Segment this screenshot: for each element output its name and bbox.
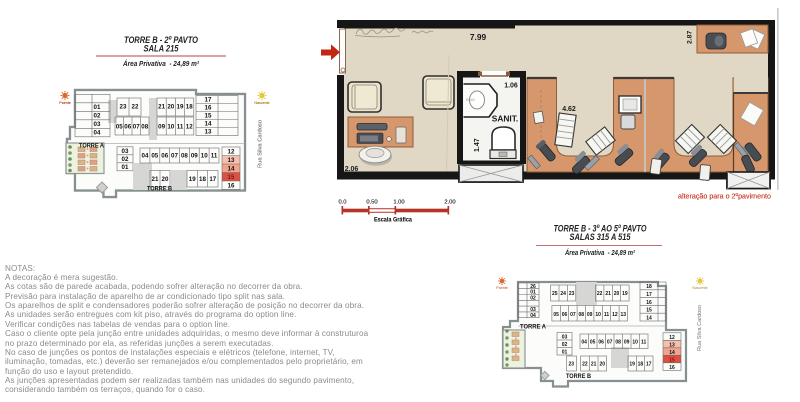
- svg-text:17: 17: [205, 97, 212, 104]
- svg-text:06: 06: [562, 312, 568, 318]
- svg-text:22: 22: [597, 291, 603, 297]
- svg-text:16: 16: [646, 300, 652, 306]
- svg-text:80x60: 80x60: [466, 98, 475, 102]
- svg-text:17: 17: [209, 176, 216, 183]
- svg-text:16: 16: [228, 183, 235, 190]
- svg-text:07: 07: [570, 312, 576, 318]
- svg-text:19: 19: [622, 291, 628, 297]
- svg-text:04: 04: [530, 313, 536, 319]
- svg-text:06: 06: [598, 339, 604, 345]
- svg-text:22: 22: [582, 361, 588, 367]
- svg-text:05: 05: [116, 124, 123, 131]
- svg-text:12: 12: [186, 124, 193, 131]
- svg-text:12: 12: [612, 312, 618, 318]
- svg-text:07: 07: [171, 153, 178, 160]
- svg-text:TORRE B: TORRE B: [147, 186, 172, 193]
- svg-text:15: 15: [205, 113, 212, 120]
- svg-text:03: 03: [562, 335, 568, 341]
- svg-text:12: 12: [228, 149, 235, 156]
- svg-text:18: 18: [646, 284, 652, 290]
- svg-text:Rua Silva Cardoso: Rua Silva Cardoso: [697, 305, 703, 351]
- svg-text:09: 09: [624, 339, 630, 345]
- svg-text:02: 02: [94, 113, 101, 120]
- svg-text:13: 13: [205, 129, 212, 136]
- svg-text:20: 20: [600, 361, 606, 367]
- svg-text:Área Privativa - 24,89 m²: Área Privativa - 24,89 m²: [564, 248, 635, 257]
- svg-text:18: 18: [638, 361, 644, 367]
- svg-text:19: 19: [629, 361, 635, 367]
- svg-text:08: 08: [579, 312, 585, 318]
- svg-text:20: 20: [614, 291, 620, 297]
- svg-text:02: 02: [122, 156, 129, 163]
- svg-text:0.50: 0.50: [366, 200, 377, 206]
- svg-text:08: 08: [615, 339, 621, 345]
- svg-text:12: 12: [669, 335, 675, 341]
- svg-text:25: 25: [552, 291, 558, 297]
- svg-text:14: 14: [669, 350, 675, 356]
- svg-text:05: 05: [151, 153, 158, 160]
- svg-text:07: 07: [607, 339, 613, 345]
- svg-text:SANIT.: SANIT.: [492, 114, 519, 124]
- svg-text:11: 11: [211, 153, 218, 160]
- svg-text:09: 09: [191, 153, 198, 160]
- svg-text:19: 19: [177, 104, 184, 111]
- svg-text:03: 03: [94, 121, 101, 128]
- svg-text:4.62: 4.62: [562, 106, 576, 113]
- svg-text:20: 20: [162, 176, 169, 183]
- svg-text:TORRE A: TORRE A: [520, 324, 546, 331]
- svg-text:Poente: Poente: [496, 286, 507, 290]
- svg-text:04: 04: [94, 130, 101, 137]
- svg-text:06: 06: [124, 124, 131, 131]
- svg-text:07: 07: [133, 124, 140, 131]
- svg-text:05: 05: [553, 312, 559, 318]
- svg-text:22: 22: [132, 104, 139, 111]
- svg-text:10: 10: [632, 339, 638, 345]
- svg-text:01: 01: [122, 164, 129, 171]
- svg-text:19: 19: [189, 176, 196, 183]
- svg-text:Área Privativa - 24,89 m²: Área Privativa - 24,89 m²: [122, 59, 200, 68]
- svg-text:17: 17: [646, 292, 652, 298]
- svg-text:7.99: 7.99: [470, 32, 487, 42]
- svg-text:10: 10: [167, 124, 174, 131]
- svg-text:TORRE B: TORRE B: [566, 373, 591, 380]
- svg-text:2.00: 2.00: [444, 200, 455, 206]
- svg-text:10: 10: [201, 153, 208, 160]
- svg-text:21: 21: [605, 291, 611, 297]
- svg-text:13: 13: [621, 312, 627, 318]
- svg-text:23: 23: [569, 291, 575, 297]
- svg-text:Nascente: Nascente: [692, 286, 707, 290]
- svg-text:13: 13: [228, 157, 235, 164]
- svg-text:17: 17: [646, 361, 652, 367]
- svg-text:20: 20: [167, 104, 174, 111]
- svg-text:SALA 215: SALA 215: [144, 44, 180, 55]
- svg-text:15: 15: [669, 357, 675, 363]
- svg-text:13: 13: [669, 342, 675, 348]
- svg-text:1.47: 1.47: [474, 138, 481, 152]
- svg-text:05: 05: [590, 339, 596, 345]
- svg-text:alteração para o 2ºpavimento: alteração para o 2ºpavimento: [678, 194, 771, 201]
- svg-text:18: 18: [186, 104, 193, 111]
- svg-text:08: 08: [141, 124, 148, 131]
- svg-text:14: 14: [646, 315, 652, 321]
- svg-text:08: 08: [181, 153, 188, 160]
- svg-text:Nascente: Nascente: [254, 101, 269, 105]
- svg-text:2.06: 2.06: [345, 166, 359, 173]
- svg-text:09: 09: [587, 312, 593, 318]
- svg-text:24: 24: [560, 291, 566, 297]
- svg-text:21: 21: [152, 176, 159, 183]
- svg-text:TORRE A: TORRE A: [79, 143, 104, 150]
- svg-text:18: 18: [199, 176, 206, 183]
- svg-text:Poente: Poente: [59, 101, 70, 105]
- svg-text:11: 11: [641, 339, 647, 345]
- svg-text:Escala Gráfica: Escala Gráfica: [374, 218, 413, 224]
- svg-text:1.06: 1.06: [504, 83, 518, 90]
- svg-text:06: 06: [161, 153, 168, 160]
- svg-text:04: 04: [581, 339, 587, 345]
- svg-text:23: 23: [569, 361, 575, 367]
- svg-text:11: 11: [604, 312, 610, 318]
- svg-text:16: 16: [669, 365, 675, 371]
- svg-text:14: 14: [205, 121, 212, 128]
- svg-text:11: 11: [177, 124, 184, 131]
- svg-text:14: 14: [228, 166, 235, 173]
- svg-text:0.0: 0.0: [338, 200, 346, 206]
- svg-text:1.00: 1.00: [393, 200, 404, 206]
- svg-text:02: 02: [562, 342, 568, 348]
- svg-text:16: 16: [205, 105, 212, 112]
- svg-text:23: 23: [120, 104, 127, 111]
- svg-text:SALAS 315 A 515: SALAS 315 A 515: [570, 232, 632, 243]
- svg-text:15: 15: [228, 174, 235, 181]
- svg-text:21: 21: [591, 361, 597, 367]
- svg-text:02: 02: [530, 296, 536, 302]
- svg-text:Rua Silva Cardoso: Rua Silva Cardoso: [258, 120, 264, 168]
- svg-text:2.87: 2.87: [687, 31, 694, 44]
- svg-text:21: 21: [158, 104, 165, 111]
- svg-text:03: 03: [122, 148, 129, 155]
- svg-text:01: 01: [94, 104, 101, 111]
- svg-text:01: 01: [562, 350, 568, 356]
- svg-text:10: 10: [595, 312, 601, 318]
- svg-text:15: 15: [646, 308, 652, 314]
- svg-text:09: 09: [158, 124, 165, 131]
- svg-text:04: 04: [142, 153, 149, 160]
